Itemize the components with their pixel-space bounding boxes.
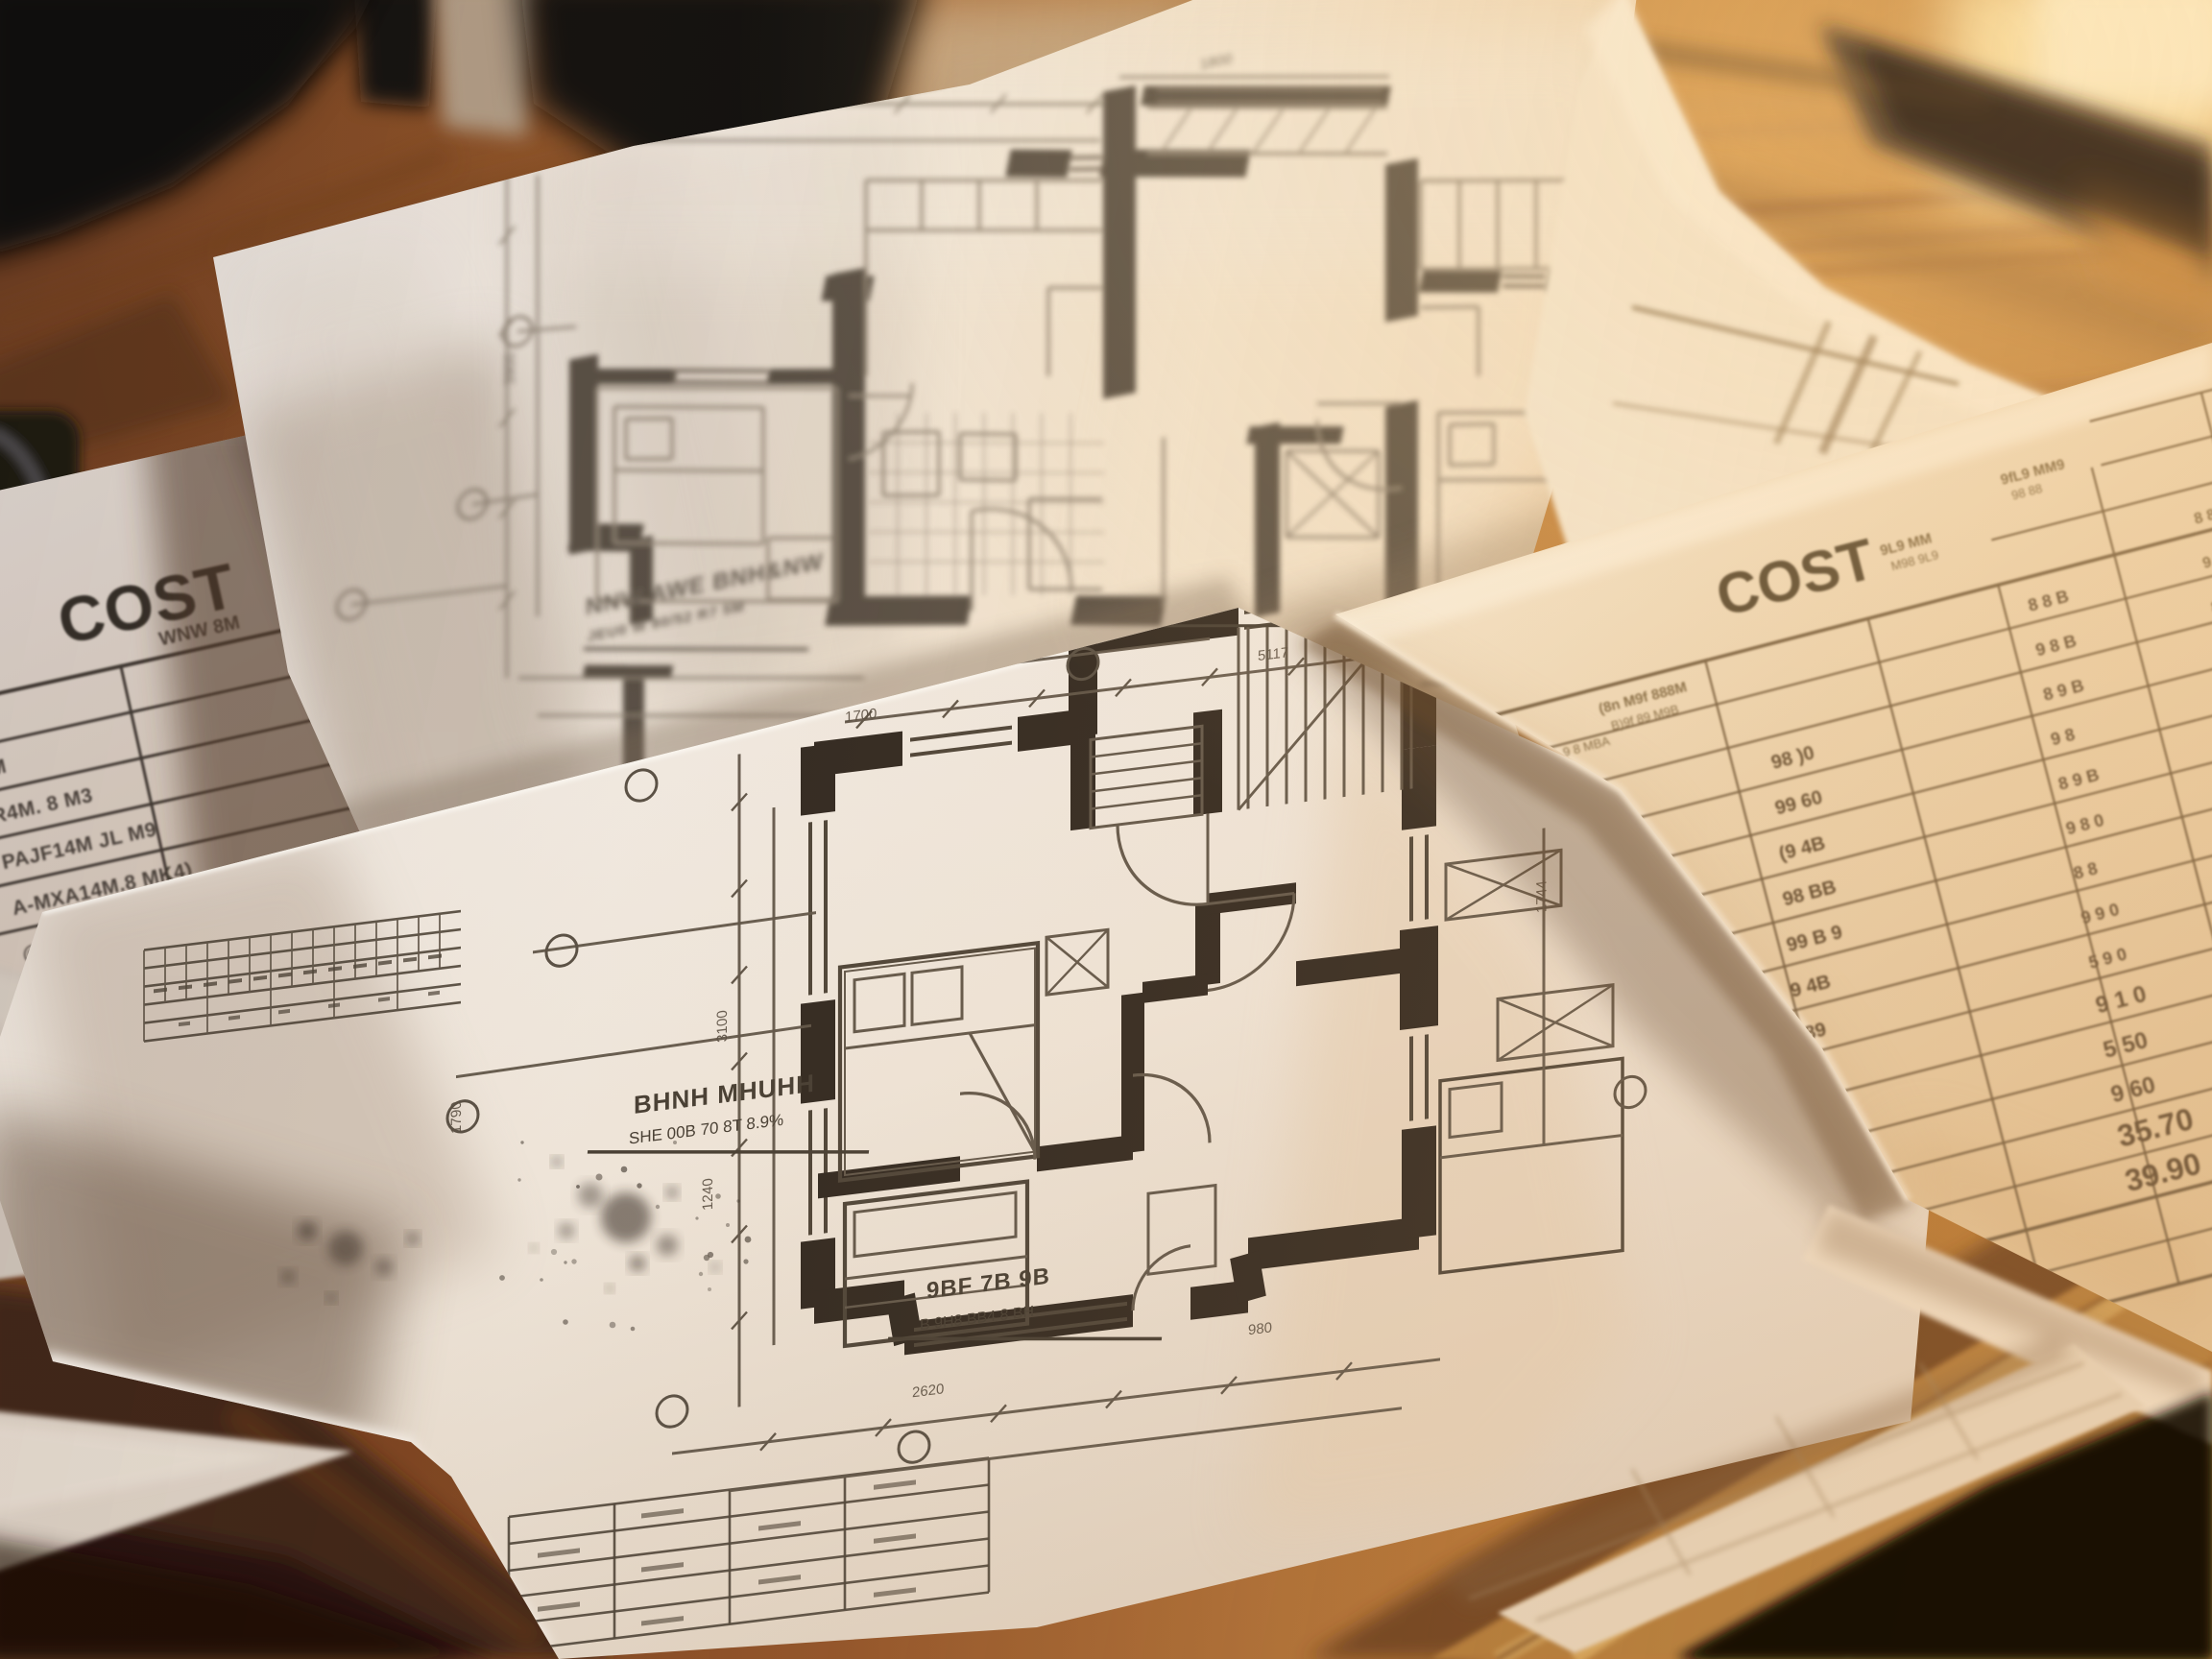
svg-text:3100: 3100 (714, 1009, 731, 1043)
svg-text:1790: 1790 (448, 1100, 465, 1134)
svg-text:980: 980 (1248, 1319, 1272, 1338)
svg-text:3900: 3900 (502, 351, 518, 387)
svg-text:1240: 1240 (700, 1177, 716, 1211)
